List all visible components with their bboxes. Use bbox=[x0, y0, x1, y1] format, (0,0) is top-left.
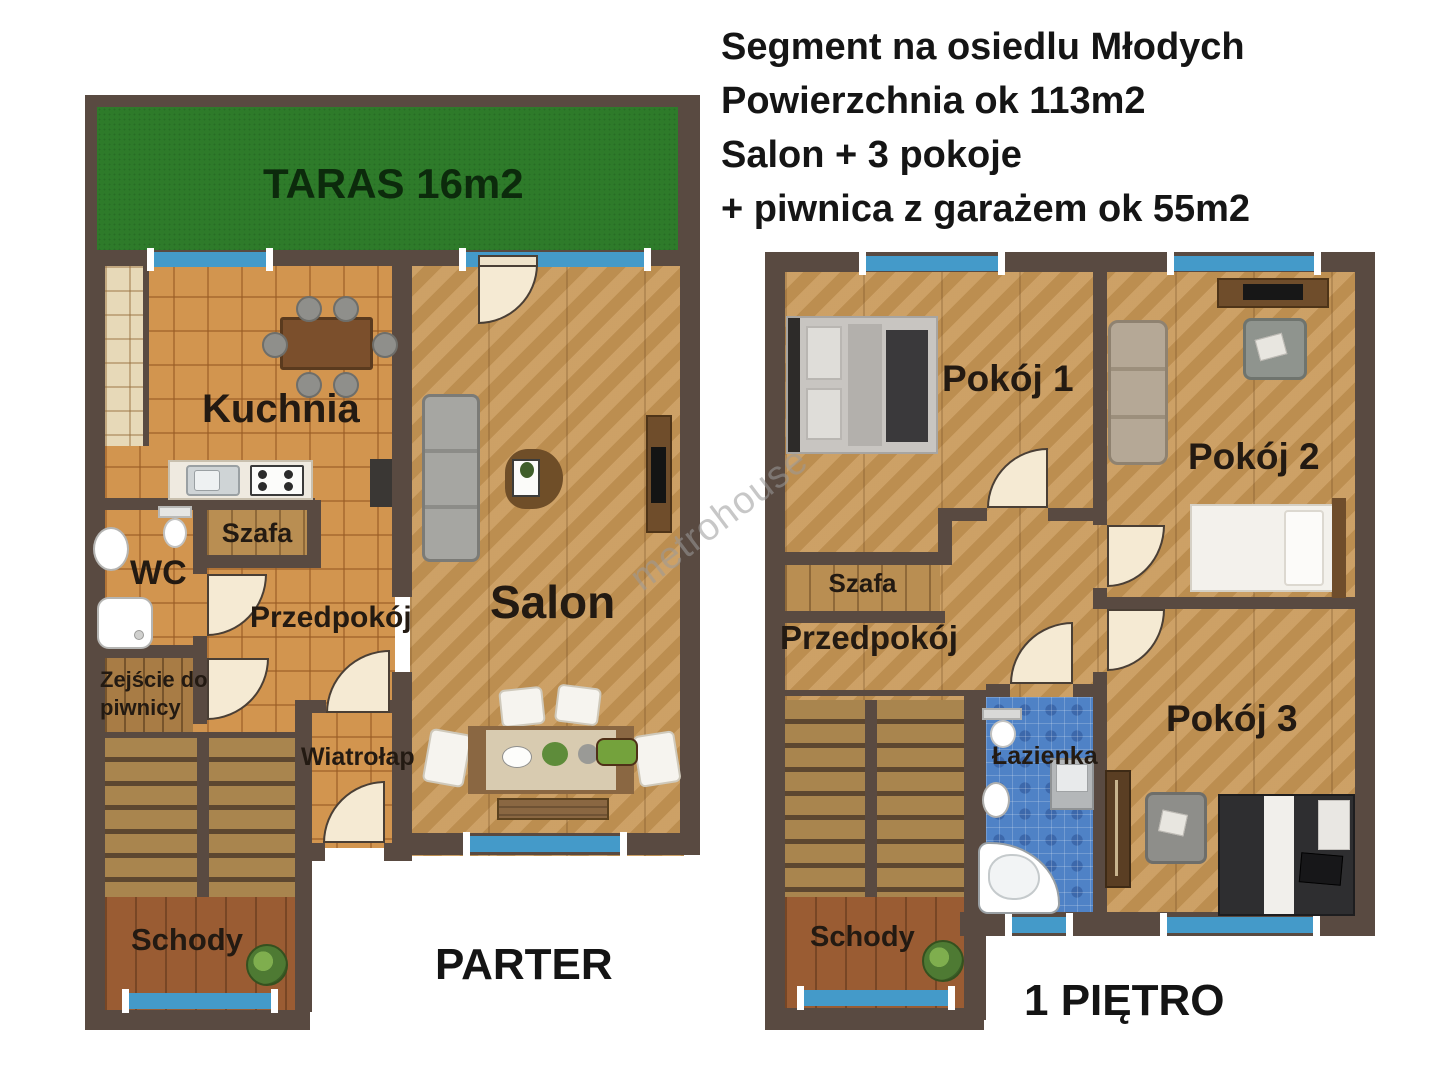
stair-flight-right bbox=[209, 738, 295, 897]
room-label-wc: WC bbox=[130, 556, 187, 592]
floorplan-canvas: Segment na osiedlu Młodych Powierzchnia … bbox=[0, 0, 1440, 1080]
salon-sofa bbox=[422, 394, 480, 562]
kitchen-chair bbox=[296, 296, 322, 322]
header-line-1: Segment na osiedlu Młodych bbox=[721, 26, 1245, 69]
window-schody-bottom bbox=[125, 993, 275, 1009]
kitchen-cabinet-divider bbox=[143, 266, 149, 446]
kitchen-chair bbox=[372, 332, 398, 358]
dining-table-end bbox=[472, 730, 486, 790]
stair-divider-2 bbox=[865, 700, 877, 897]
header-line-2: Powierzchnia ok 113m2 bbox=[721, 80, 1146, 123]
kitchen-table bbox=[280, 317, 373, 370]
dining-bench bbox=[497, 798, 609, 820]
room-label-szafa2: Szafa bbox=[785, 570, 940, 597]
stove-burner bbox=[284, 482, 293, 491]
wall-wiatrolap-top-a bbox=[295, 700, 326, 713]
toilet-bowl bbox=[163, 518, 187, 548]
kitchen-chair bbox=[333, 296, 359, 322]
stair-flight-left bbox=[105, 738, 197, 897]
room-label-schody: Schody bbox=[131, 924, 243, 957]
wall-wiatrolap-bottom-b bbox=[384, 843, 412, 861]
window-pokoj1-top bbox=[862, 256, 1002, 271]
wall2-bath-top-b bbox=[1073, 684, 1093, 697]
potted-plant-2 bbox=[922, 940, 964, 982]
kitchen-tv bbox=[370, 459, 392, 507]
kitchen-cabinet-column bbox=[105, 266, 143, 446]
wall-wc-right-a bbox=[193, 508, 207, 574]
bed1-pillow bbox=[806, 388, 842, 440]
window-salon-bottom bbox=[466, 836, 624, 852]
table-flowers bbox=[542, 742, 568, 766]
stair-flight-left-2 bbox=[785, 700, 865, 897]
bed1-throw bbox=[886, 330, 928, 442]
wall2-annex-bottom bbox=[765, 1008, 984, 1030]
header-line-4: + piwnica z garażem ok 55m2 bbox=[721, 188, 1250, 231]
wall2-bath-top-a bbox=[986, 684, 1010, 697]
stair-divider bbox=[197, 738, 209, 897]
bathtub-basin bbox=[988, 854, 1040, 900]
dining-chair bbox=[498, 686, 546, 728]
table-fruit-bowl bbox=[596, 738, 638, 766]
room-label-salon: Salon bbox=[490, 578, 615, 626]
bed1-headboard bbox=[788, 318, 800, 452]
wall2-szafa-top bbox=[785, 552, 945, 565]
bed3-pillow-white bbox=[1318, 800, 1350, 850]
terrace-label: TARAS 16m2 bbox=[263, 162, 524, 206]
wall-kitchen-salon-upper bbox=[392, 250, 412, 597]
room-label-wiatrolap: Wiatrołap bbox=[301, 744, 415, 770]
potted-plant bbox=[246, 944, 288, 986]
bed1-pillow bbox=[806, 326, 842, 380]
room-label-kuchnia: Kuchnia bbox=[202, 388, 360, 430]
wall-szafa-bottom bbox=[207, 555, 321, 568]
floor-title-parter: PARTER bbox=[435, 940, 613, 990]
table-decor bbox=[578, 744, 598, 764]
floor-title-pietro: 1 PIĘTRO bbox=[1024, 976, 1225, 1026]
window-schody2-bottom bbox=[800, 990, 952, 1006]
dining-chair bbox=[554, 683, 602, 726]
patio-door-leaf bbox=[478, 255, 538, 267]
sofa-pokoj2 bbox=[1108, 320, 1168, 465]
window-pokoj2-top bbox=[1170, 256, 1318, 271]
shower-drain bbox=[134, 630, 144, 640]
bed2-pillow bbox=[1284, 510, 1324, 586]
wardrobe-pokoj3 bbox=[1105, 770, 1131, 888]
coffee-plant-top bbox=[520, 462, 534, 478]
window-kitchen-top bbox=[150, 252, 270, 267]
room-label-zejscie: Zejście do piwnicy bbox=[100, 666, 218, 722]
room-label-pokoj2: Pokój 2 bbox=[1188, 438, 1320, 477]
tv-pokoj2 bbox=[1243, 284, 1303, 300]
terrace-wall-top bbox=[85, 95, 690, 107]
window-pokoj3-bottom bbox=[1163, 917, 1317, 933]
kitchen-stove bbox=[250, 465, 304, 496]
terrace-wall-left bbox=[85, 95, 97, 255]
wall2-main-vert-a bbox=[1093, 252, 1107, 525]
wall-stairs-top-line bbox=[105, 732, 295, 738]
wall2-stairs-top-line bbox=[785, 690, 965, 696]
room-label-szafa: Szafa bbox=[207, 519, 307, 547]
bed3-blanket bbox=[1264, 796, 1294, 914]
wardrobe3-handle bbox=[1115, 780, 1118, 876]
stove-burner bbox=[258, 470, 267, 479]
wall2-main-vert-c bbox=[1093, 672, 1107, 697]
bed-pokoj1 bbox=[786, 316, 938, 454]
room-label-przedpokoj: Przedpokój bbox=[250, 602, 412, 634]
stove-burner bbox=[258, 482, 267, 491]
bed-pokoj3 bbox=[1218, 794, 1355, 916]
terrace-wall-right bbox=[678, 95, 700, 255]
kitchen-sink-basin bbox=[194, 470, 220, 491]
wall-annex-bottom bbox=[85, 1010, 310, 1030]
room-label-przedpokoj2: Przedpokój bbox=[780, 621, 958, 656]
toilet-2-tank bbox=[982, 708, 1022, 720]
wall-wiatrolap-bottom-a bbox=[295, 843, 325, 861]
kitchen-chair bbox=[262, 332, 288, 358]
room-label-pokoj3: Pokój 3 bbox=[1166, 700, 1298, 739]
room-label-pokoj1: Pokój 1 bbox=[942, 360, 1074, 399]
bed2-headboard bbox=[1332, 498, 1346, 598]
room-label-schody2: Schody bbox=[810, 922, 915, 952]
stove-burner bbox=[284, 470, 293, 479]
wall2-pokoj1-b bbox=[1048, 508, 1094, 521]
bed3-pillow-dark bbox=[1299, 852, 1343, 886]
header-line-3: Salon + 3 pokoje bbox=[721, 134, 1022, 177]
bed1-sheet bbox=[848, 324, 882, 446]
dining-chair bbox=[632, 730, 682, 788]
wall2-pokoj23 bbox=[1093, 597, 1375, 609]
stair-flight-right-2 bbox=[877, 700, 964, 897]
table-plate bbox=[502, 746, 532, 768]
wall2-outer-right bbox=[1355, 252, 1375, 936]
salon-tv bbox=[651, 447, 666, 503]
shower bbox=[97, 597, 153, 649]
toilet bbox=[158, 506, 192, 518]
window-lazienka-bottom bbox=[1008, 917, 1070, 933]
room-label-lazienka: Łazienka bbox=[992, 743, 1098, 769]
bath-sink bbox=[982, 782, 1010, 818]
wc-sink bbox=[93, 527, 129, 571]
